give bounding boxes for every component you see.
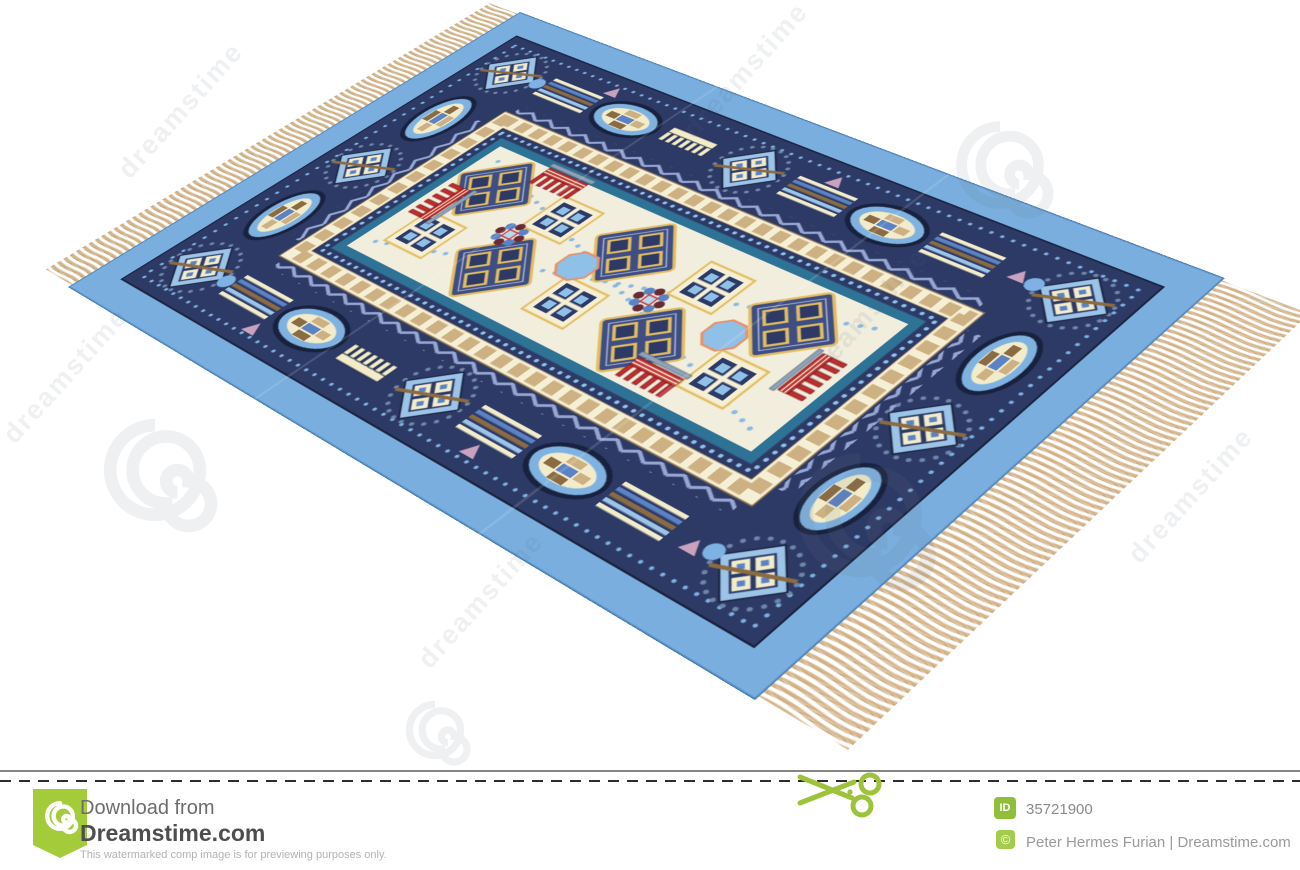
copyright-icon: ©	[996, 830, 1015, 849]
carpet-artwork	[68, 12, 1225, 700]
cut-here-dashed-line	[0, 780, 1300, 782]
author-credit-text: Peter Hermes Furian | Dreamstime.com	[1026, 834, 1291, 851]
watermark-disclaimer-text: This watermarked comp image is for previ…	[80, 849, 387, 861]
download-from-label: Download from	[80, 797, 215, 820]
image-id-value: 35721900	[1026, 801, 1093, 818]
scissors-icon	[796, 765, 888, 821]
dreamstime-logo-badge	[33, 789, 87, 858]
watermark-spiral-icon	[85, 400, 225, 540]
watermark-spiral-icon	[395, 690, 475, 770]
footer-divider-line	[0, 770, 1300, 772]
dreamstime-brand-text: Dreamstime.com	[80, 820, 265, 847]
stock-image-canvas: dreamstime dreamstime dreamstime dreamst…	[0, 0, 1300, 870]
magic-carpet-illustration	[68, 12, 1225, 700]
image-id-badge: ID	[994, 797, 1016, 819]
watermark-text: dreamstime	[0, 301, 135, 449]
